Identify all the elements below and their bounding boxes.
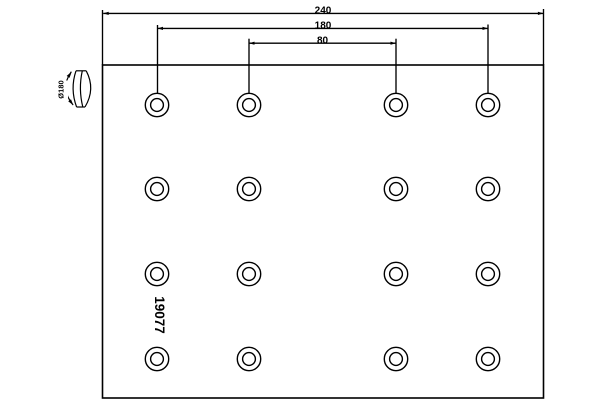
svg-text:Ø180: Ø180 [57,80,66,98]
svg-text:80: 80 [317,35,329,46]
svg-text:180: 180 [315,21,332,32]
svg-text:240: 240 [315,6,332,17]
svg-text:19077: 19077 [152,296,167,334]
